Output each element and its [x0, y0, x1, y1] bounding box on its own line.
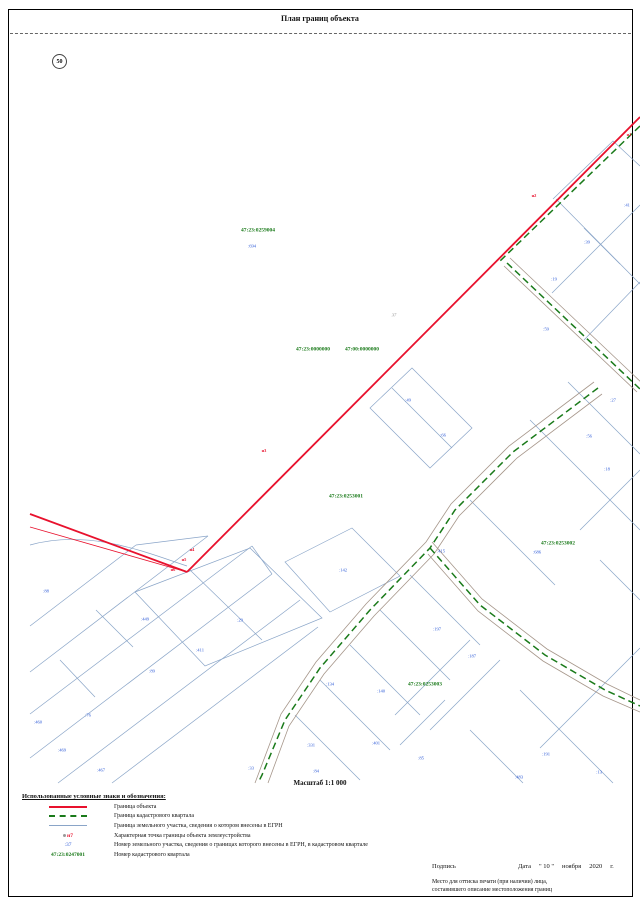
legend-row: Граница объекта: [22, 802, 618, 812]
map-label-parcel: :84: [313, 770, 319, 775]
map-label-parcel: :39: [584, 241, 590, 246]
date-era: г.: [610, 863, 614, 870]
map-label-parcel: :411: [196, 649, 204, 654]
map-label-parcel: :49: [405, 399, 411, 404]
map-label-quarter: 47:23:0259004: [241, 228, 275, 234]
map-label-quarter: 47:23:0253002: [541, 541, 575, 547]
map-label-parcel: :331: [307, 744, 315, 749]
map-label-point: н1: [627, 133, 632, 137]
map-label-parcel: :41: [624, 204, 630, 209]
map-label-parcel: :19: [551, 278, 557, 283]
date-label: Дата: [518, 863, 531, 870]
object-boundary-line-icon: [22, 806, 114, 808]
legend-item-label: Номер земельного участка, сведения о гра…: [114, 842, 368, 848]
signature-label: Подпись: [432, 863, 456, 870]
legend: Использованные условные знаки и обозначе…: [22, 793, 618, 860]
legend-item-label: Характерная точка границы объекта землеу…: [114, 833, 251, 839]
map-label-parcel: :13: [596, 771, 602, 776]
legend-row: н7 Характерная точка границы объекта зем…: [22, 831, 618, 841]
seal-note-line1: Место для оттиска печати (при наличии) л…: [432, 879, 552, 887]
date-year: 2020: [589, 863, 602, 870]
legend-row: Граница кадастрового квартала: [22, 812, 618, 822]
map-label-parcel: :66: [440, 434, 446, 439]
boundary-point-icon: н7: [22, 833, 114, 839]
map-label-parcel: :401: [372, 742, 380, 747]
map-label-quarter: 47:23:0253001: [329, 494, 363, 500]
scale-label: Масштаб 1:1 000: [0, 779, 640, 787]
map-label-parcel: :29: [237, 619, 243, 624]
map-label-point: н5: [182, 558, 187, 562]
date-line: Дата" 10 "ноября2020г.: [518, 863, 628, 870]
cadastral-plan-page: { "header": { "title": "План границ объе…: [0, 0, 640, 905]
map-label-parcel: :85: [418, 757, 424, 762]
map-label-parcel: :59: [543, 328, 549, 333]
legend-item-label: Номер кадастрового квартала: [114, 852, 190, 858]
map-labels-layer: 47:23:025900447:23:000000047:00:00000004…: [0, 0, 640, 905]
map-label-parcel: :460: [34, 721, 42, 726]
legend-item-label: Граница кадастрового квартала: [114, 813, 194, 819]
parcel-boundary-line-icon: [22, 825, 114, 826]
map-label-parcel: :694: [248, 245, 256, 250]
map-label-parcel: :467: [97, 769, 105, 774]
map-label-parcel: :191: [542, 753, 550, 758]
map-label-parcel: :686: [533, 551, 541, 556]
map-label-parcel: :89: [149, 670, 155, 675]
map-label-point: н4: [190, 548, 195, 552]
map-label-quarter: 47:23:0253003: [408, 682, 442, 688]
map-label-quarter: 47:00:0000000: [345, 347, 379, 353]
map-label-parcel: :197: [433, 628, 441, 633]
legend-heading: Использованные условные знаки и обозначе…: [22, 793, 618, 800]
map-label-note: 37: [392, 314, 397, 319]
map-label-point: н6: [171, 568, 176, 572]
seal-note-line2: составившего описание местоположения гра…: [432, 887, 552, 895]
parcel-number-icon: :37: [22, 842, 114, 848]
map-label-parcel: :469: [58, 749, 66, 754]
quarter-boundary-line-icon: [22, 815, 114, 817]
map-label-parcel: :415: [437, 550, 445, 555]
legend-row: 47:23:0247001 Номер кадастрового квартал…: [22, 850, 618, 860]
date-month: ноября: [562, 863, 581, 870]
legend-item-label: Граница земельного участка, сведения о к…: [114, 823, 283, 829]
legend-row: :37 Номер земельного участка, сведения о…: [22, 840, 618, 850]
map-label-parcel: :88: [43, 590, 49, 595]
map-label-point: н2: [532, 194, 537, 198]
map-label-parcel: :33: [248, 767, 254, 772]
map-label-parcel: :56: [586, 435, 592, 440]
map-label-quarter: 47:23:0000000: [296, 347, 330, 353]
quarter-number-icon: 47:23:0247001: [22, 852, 114, 858]
map-label-parcel: :449: [141, 618, 149, 623]
map-label-parcel: :76: [85, 714, 91, 719]
date-day: " 10 ": [539, 863, 554, 870]
legend-item-label: Граница объекта: [114, 804, 156, 810]
map-label-parcel: :134: [326, 683, 334, 688]
map-label-parcel: :140: [377, 690, 385, 695]
map-label-parcel: :27: [610, 399, 616, 404]
map-label-parcel: :142: [339, 569, 347, 574]
map-label-point: н3: [262, 449, 267, 453]
legend-row: Граница земельного участка, сведения о к…: [22, 821, 618, 831]
map-label-parcel: :18: [604, 468, 610, 473]
seal-note: Место для оттиска печати (при наличии) л…: [432, 879, 552, 895]
map-label-parcel: :187: [468, 655, 476, 660]
